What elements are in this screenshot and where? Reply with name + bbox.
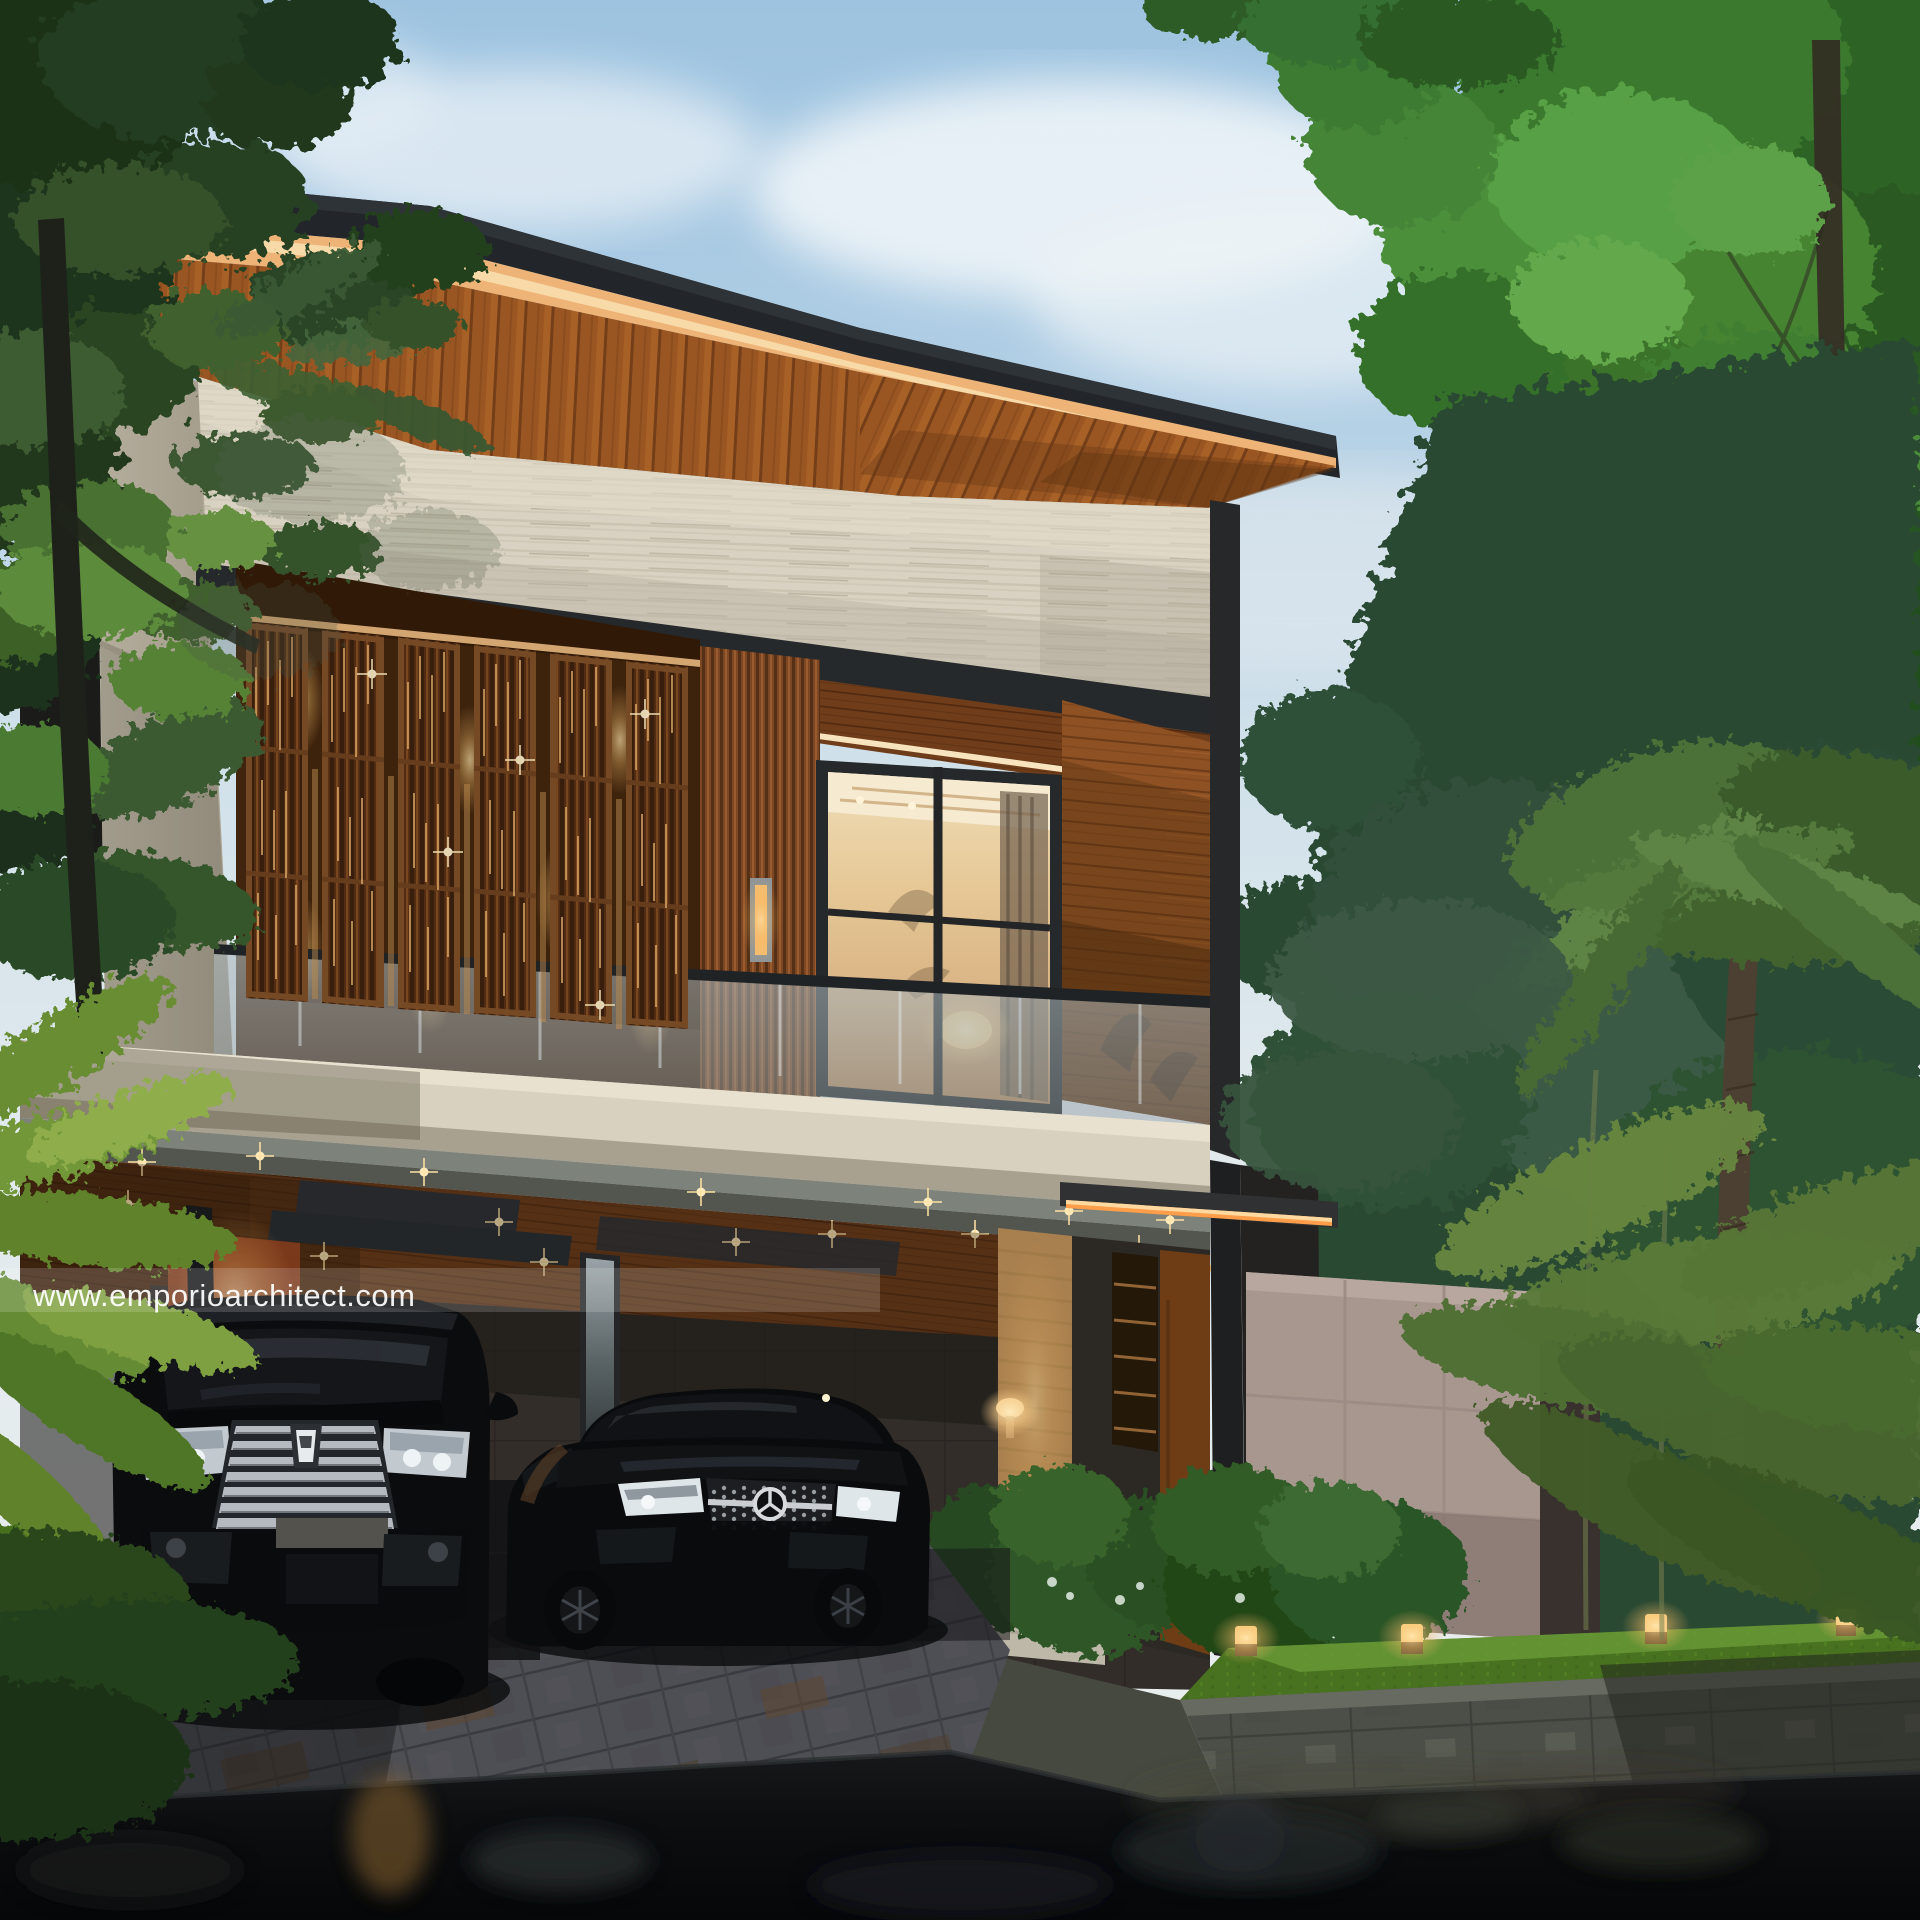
svg-text:www.emporioarchitect.com: www.emporioarchitect.com: [32, 1278, 415, 1313]
